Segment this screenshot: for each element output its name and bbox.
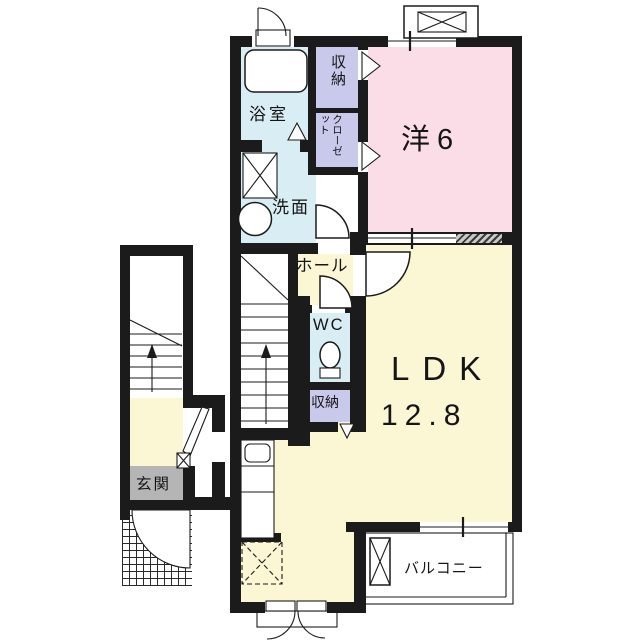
terrace-doors <box>257 601 337 639</box>
ldk-size-label: 12.8 <box>381 399 467 433</box>
refrigerator-space <box>242 542 282 584</box>
storage-bottom-door-marker <box>340 424 354 438</box>
storage-door-marker <box>362 52 380 80</box>
bath-door-marker <box>288 123 306 140</box>
ldk-label: LDK <box>391 350 494 388</box>
entrance-door-pivot <box>177 453 190 468</box>
bathtub <box>245 50 307 92</box>
western-room-label: 洋6 <box>401 116 460 158</box>
ac-outdoor-unit <box>404 6 478 38</box>
hall-ldk-door-arc <box>366 252 410 296</box>
internal-stairs <box>241 256 288 424</box>
washroom-sink <box>239 203 272 236</box>
bath-label: 浴室 <box>249 100 289 125</box>
hall-label: ホール <box>296 252 349 276</box>
closet-label: クローゼット <box>317 114 343 156</box>
washroom-door-arc <box>316 205 349 238</box>
toilet <box>320 342 340 378</box>
wc-door-arc <box>320 276 352 308</box>
wc-label: WC <box>313 316 345 335</box>
balcony-label: バルコニー <box>404 557 484 578</box>
top-vent-door <box>256 8 290 46</box>
washroom-label: 洗面 <box>272 193 310 218</box>
washer-pan <box>243 153 277 198</box>
external-stairs-arrow <box>147 344 157 358</box>
closet-door-marker <box>362 142 380 170</box>
kitchen-counter <box>241 440 274 538</box>
porch-door-arc <box>132 510 190 568</box>
floor-plan: 収納 クローゼット 浴室 洗面 洋6 ホール WC 収納 LDK 12.8 玄関… <box>0 0 640 640</box>
balcony-equipment-box <box>370 538 390 585</box>
storage-bottom-label: 収納 <box>311 392 339 412</box>
storage-top-label: 収納 <box>327 54 348 88</box>
entrance-door-leaf <box>183 407 209 456</box>
internal-stairs-arrow <box>261 344 271 358</box>
entrance-label: 玄関 <box>136 472 171 494</box>
